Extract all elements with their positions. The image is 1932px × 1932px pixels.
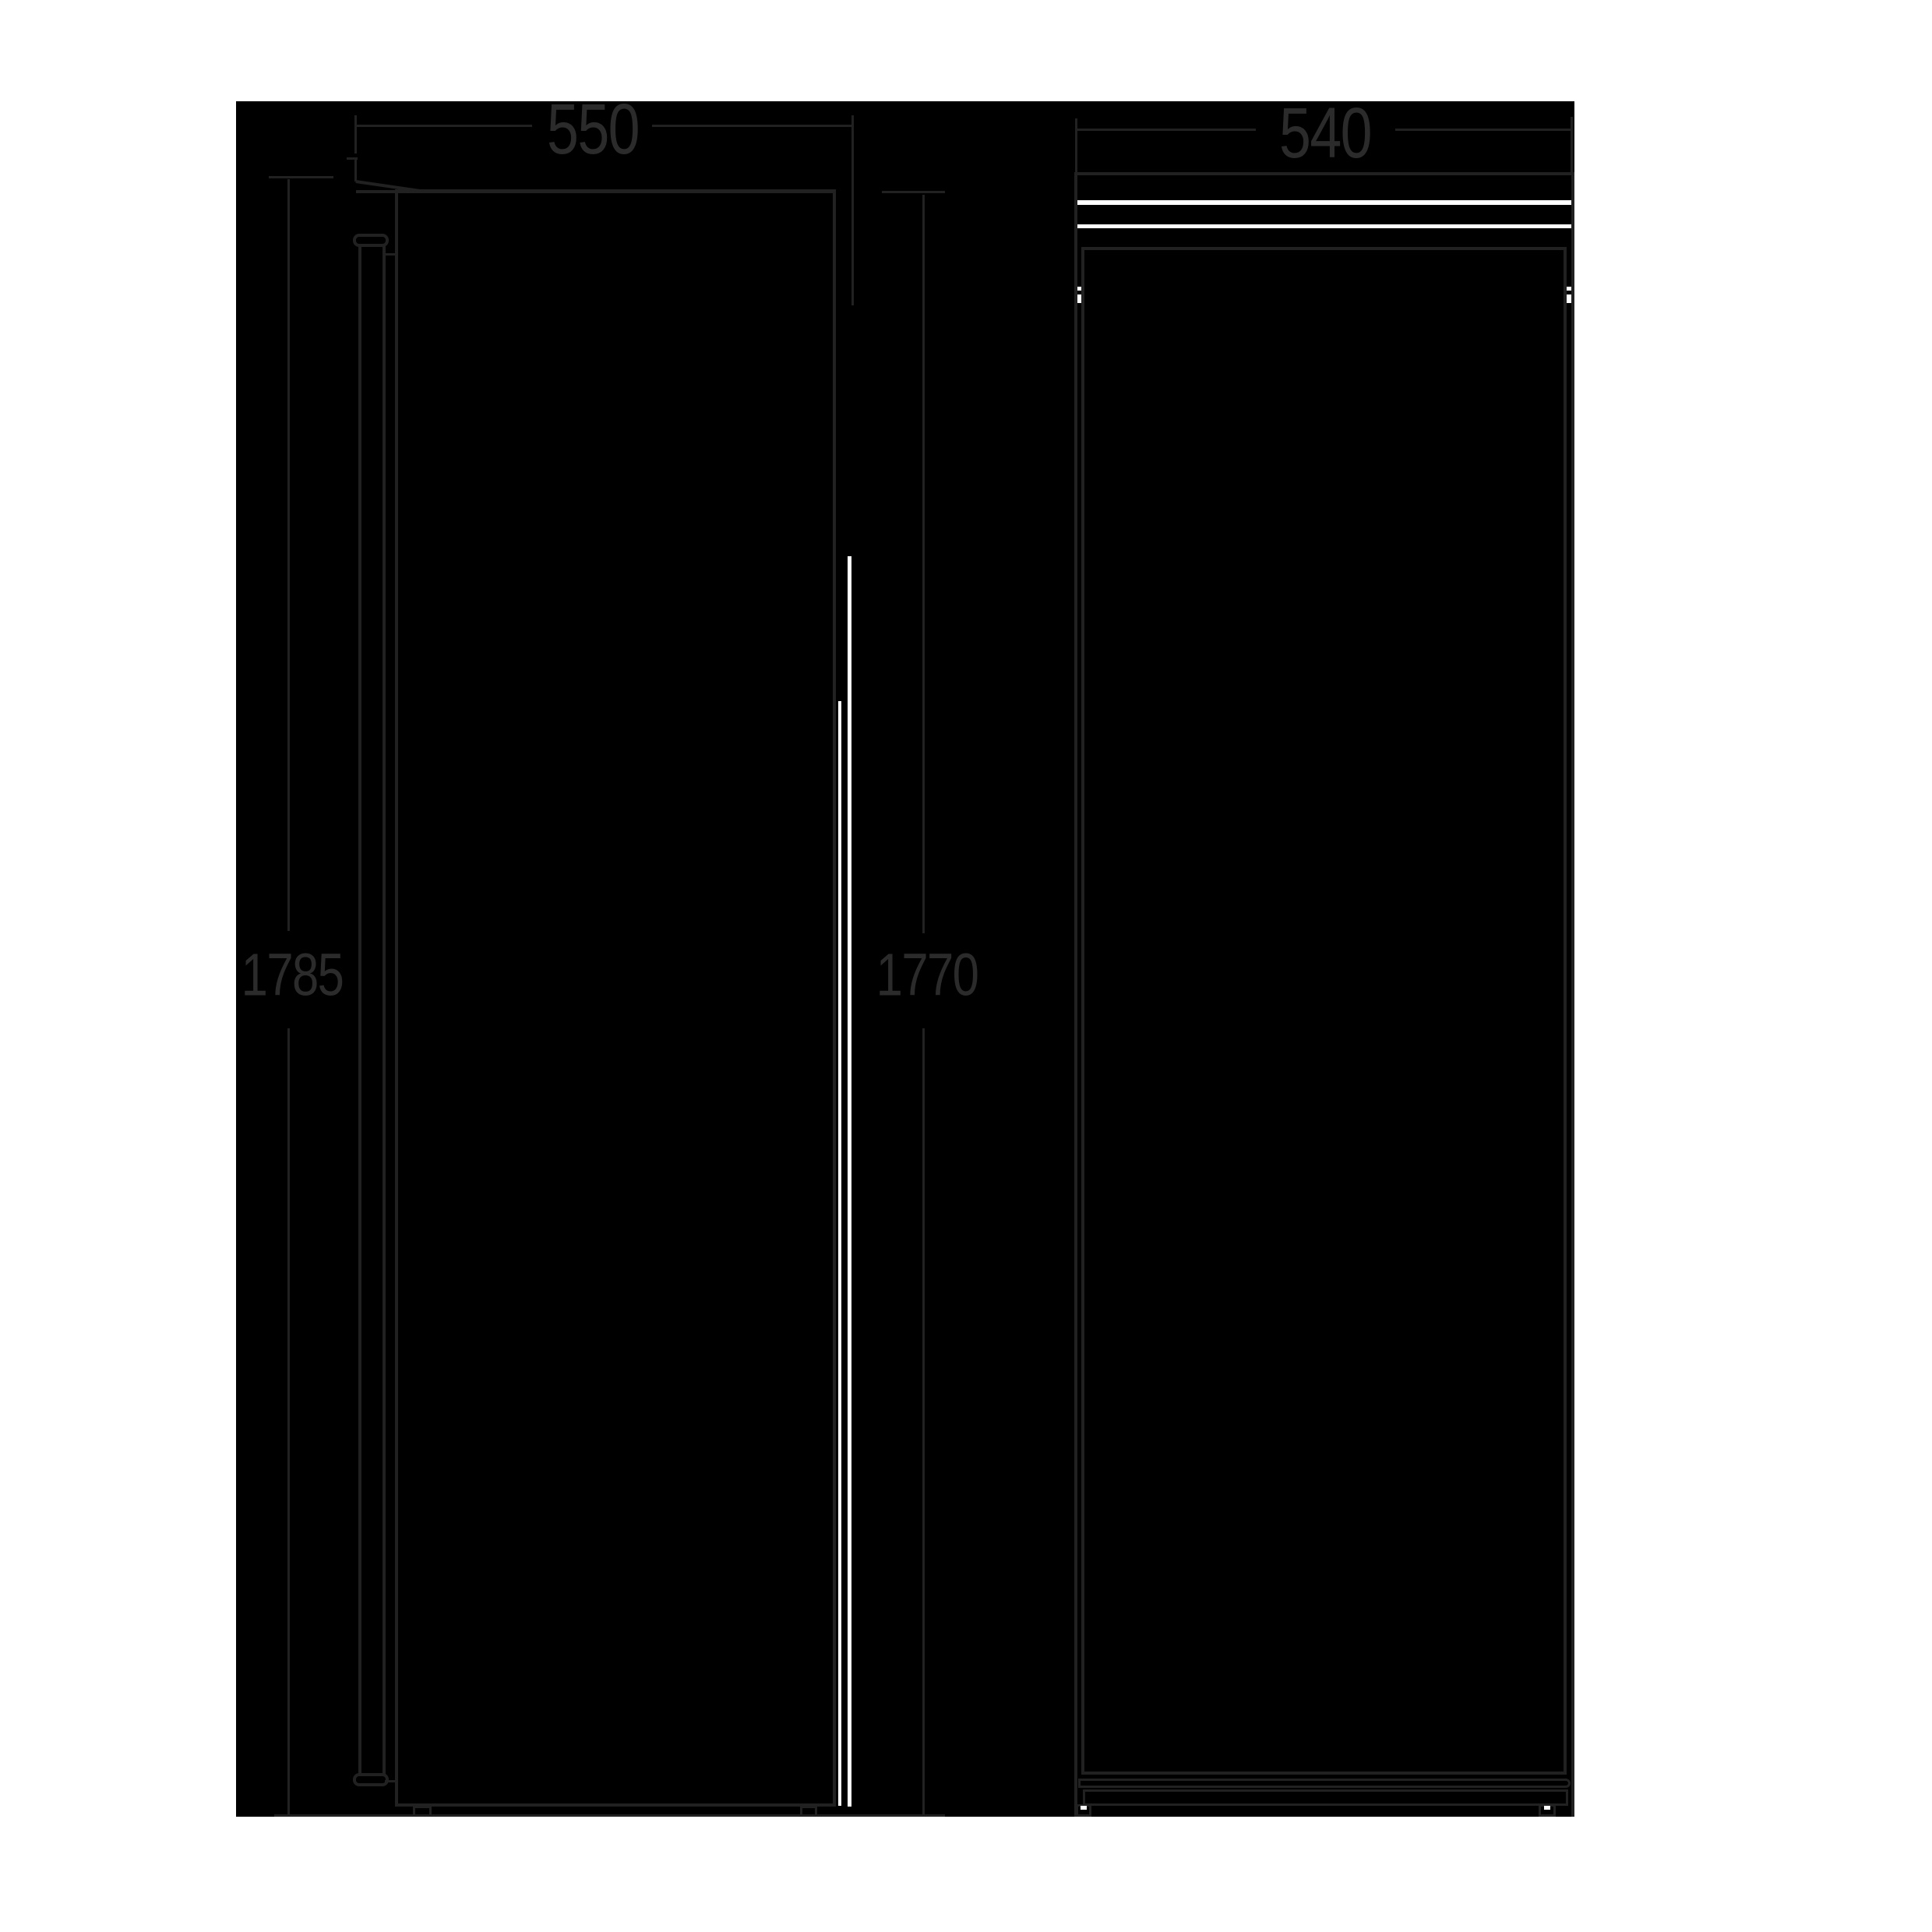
dim-550-ext-right <box>851 115 854 305</box>
door-gap-highlight-outer <box>848 556 851 1807</box>
handle-bottom-cap <box>353 1773 389 1786</box>
dim-540-ext-left <box>1075 118 1077 175</box>
dim-540-ext-right <box>1571 117 1573 173</box>
dim-1785-line-bottom <box>287 1028 290 1815</box>
drawing-canvas: 550 1785 1770 <box>236 101 1574 1817</box>
handle-bar-right-edge <box>383 246 386 1775</box>
dim-label-depth: 540 <box>1279 97 1371 169</box>
page: 550 1785 1770 <box>0 0 1932 1932</box>
dim-540-line-left <box>1076 129 1256 131</box>
dim-550-line-right <box>652 125 852 127</box>
dim-550-line-left <box>356 125 532 127</box>
dim-label-cabinet-height: 1785 <box>241 946 344 1006</box>
dim-1785-line-top <box>287 179 290 931</box>
side-inner-panel <box>1081 247 1567 1775</box>
dim-550-ext-left <box>354 115 357 153</box>
handle-bar-left-edge <box>358 246 361 1775</box>
front-door-panel <box>395 189 836 1807</box>
dim-1785-ext-top <box>269 176 333 178</box>
side-wheel-rear-notch <box>1544 1806 1550 1810</box>
door-gap-highlight-inner <box>838 701 841 1806</box>
dim-1770-line-top <box>922 195 925 933</box>
dim-1770-line-bottom <box>922 1028 925 1814</box>
dim-540-line-right <box>1395 129 1571 131</box>
front-corner-edge <box>354 157 357 182</box>
handle-top-mount <box>385 253 396 256</box>
side-plinth <box>1083 1789 1568 1806</box>
handle-bottom-mount <box>385 1780 396 1782</box>
handle-top-cap <box>353 234 389 247</box>
side-door-bottom-bar <box>1078 1779 1571 1788</box>
ground-line <box>274 1814 945 1817</box>
dim-1770-ext-top <box>882 191 945 193</box>
dim-label-front-width: 550 <box>547 93 639 165</box>
side-seam-strip-2 <box>1077 224 1571 228</box>
dim-label-door-height: 1770 <box>876 946 978 1006</box>
side-wheel-front-notch <box>1081 1806 1087 1810</box>
side-seam-strip-1 <box>1077 200 1571 205</box>
front-top-edge <box>356 190 836 193</box>
